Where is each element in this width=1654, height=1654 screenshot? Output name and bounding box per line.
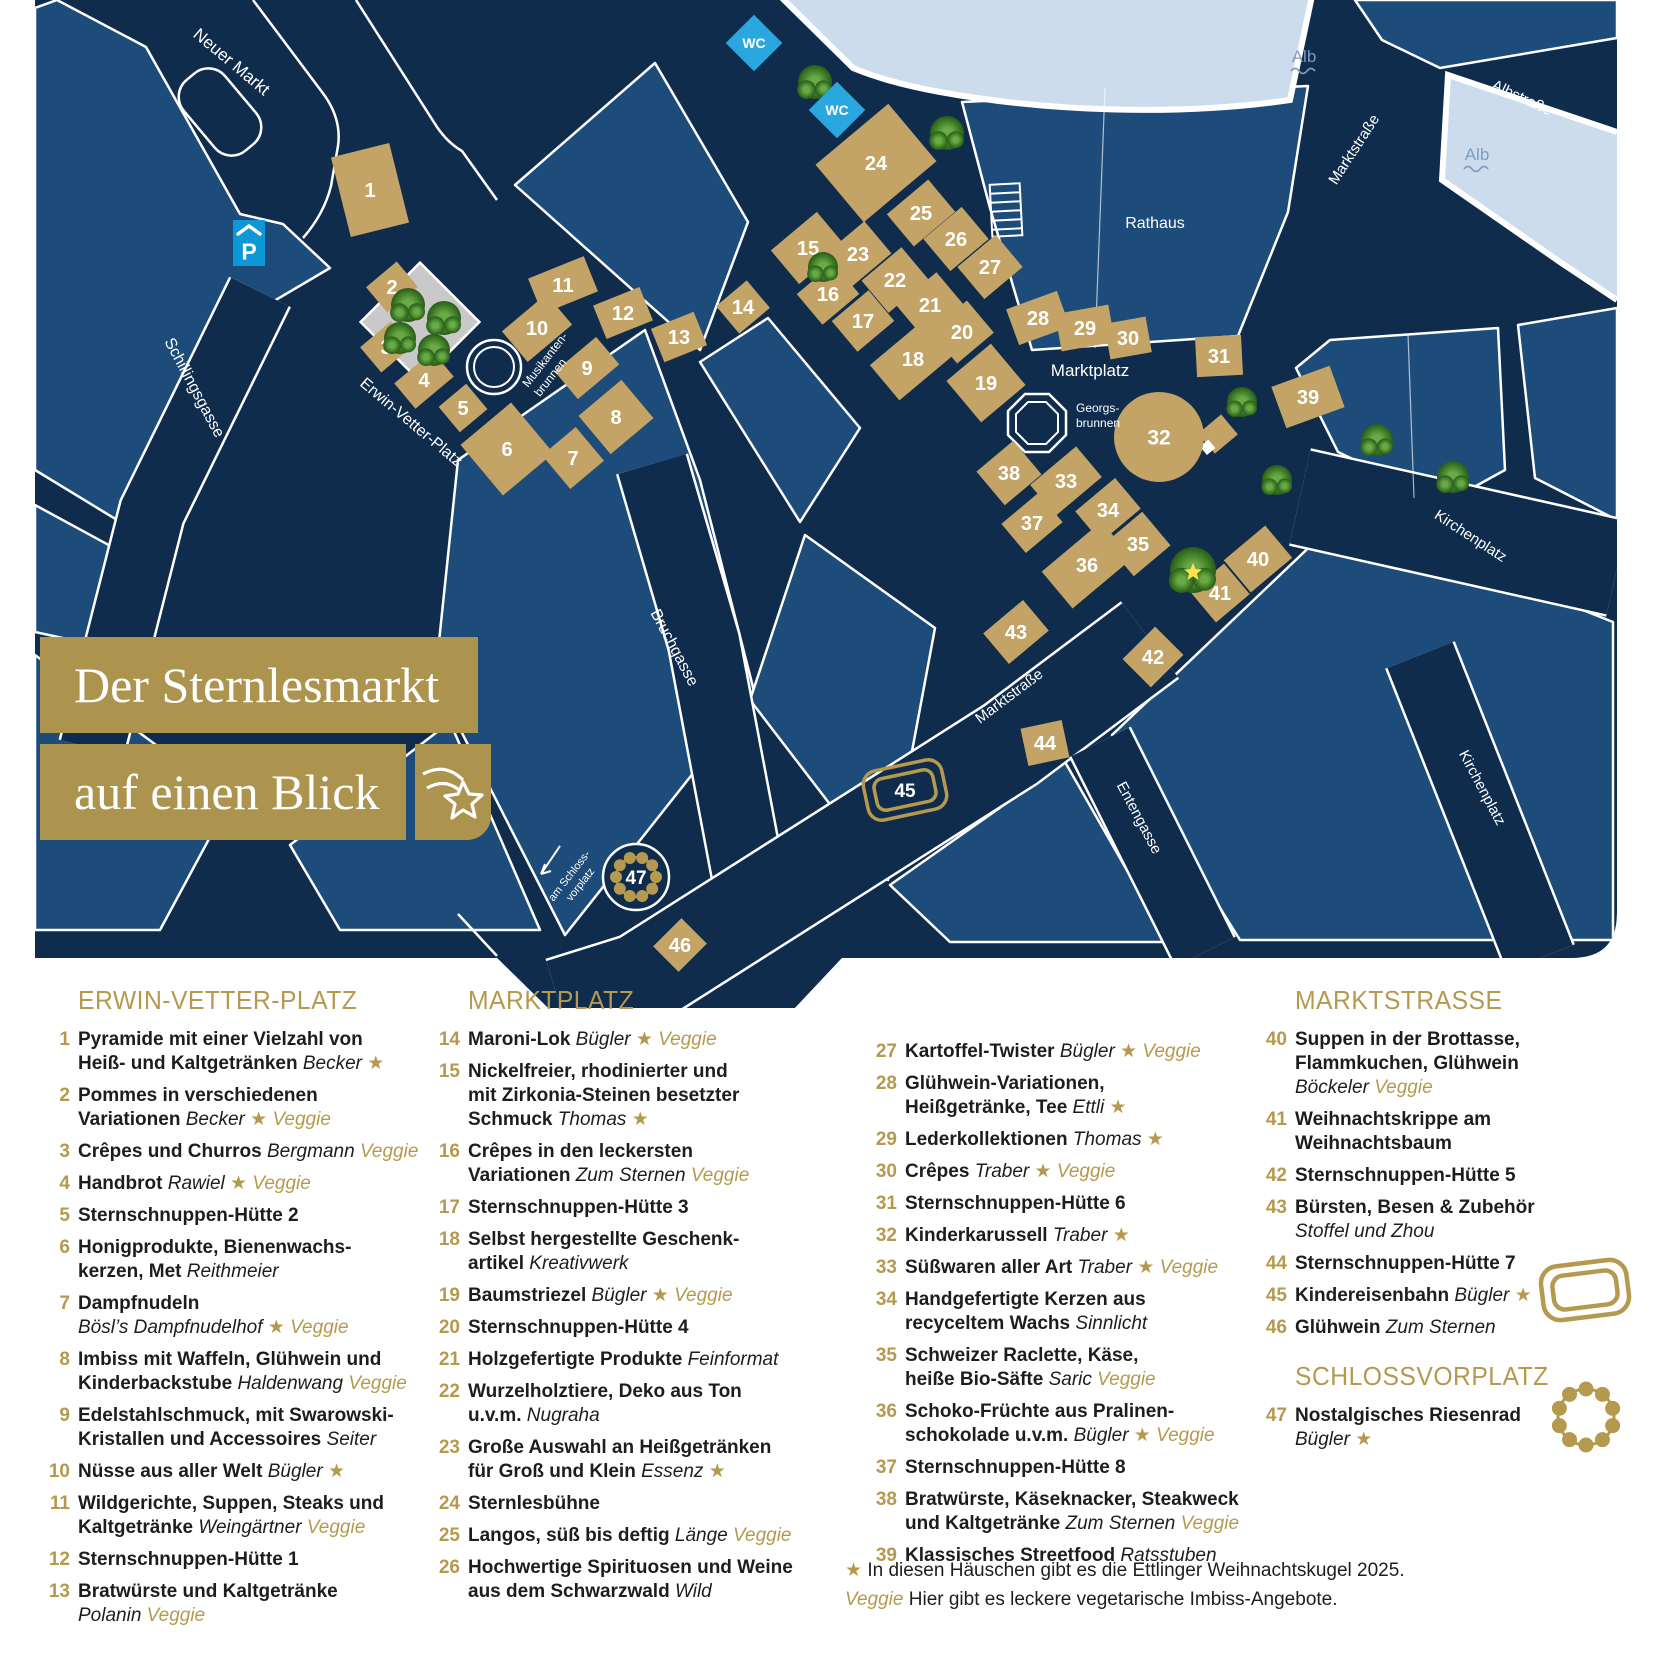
legend-item-number: 47	[1253, 1404, 1287, 1428]
legend-item-9: 9Edelstahlschmuck, mit Swarowski-Kristal…	[78, 1404, 438, 1452]
svg-text:45: 45	[894, 781, 916, 802]
svg-text:23: 23	[847, 244, 869, 266]
legend-item-40: 40Suppen in der Brottasse,Flammkuchen, G…	[1295, 1028, 1654, 1100]
svg-text:31: 31	[1208, 346, 1230, 368]
legend-item-12: 12Sternschnuppen-Hütte 1	[78, 1548, 438, 1572]
legend-text: u.v.m.	[468, 1405, 527, 1426]
legend-item-34: 34Handgefertigte Kerzen ausrecyceltem Wa…	[905, 1288, 1265, 1336]
legend-text: Langos, süß bis deftig	[468, 1525, 675, 1546]
legend-text: Stoffel und Zhou	[1295, 1221, 1434, 1242]
legend-item-8: 8Imbiss mit Waffeln, Glühwein undKinderb…	[78, 1348, 438, 1396]
legend-text: Traber	[1053, 1225, 1113, 1246]
legend-text: Heißgetränke, Tee	[905, 1097, 1073, 1118]
legend-text: Glühwein	[1295, 1317, 1386, 1338]
legend-text: Veggie	[845, 1589, 903, 1610]
street-label: Marktplatz	[1051, 361, 1129, 380]
star-marker: ★	[845, 1560, 862, 1581]
legend-column-2: 14Maroni-Lok Bügler ★ Veggie15Nickelfrei…	[468, 1028, 828, 1612]
legend-item-14: 14Maroni-Lok Bügler ★ Veggie	[468, 1028, 828, 1052]
star-marker: ★	[652, 1285, 669, 1306]
legend-text: Kinderkarussell	[905, 1225, 1053, 1246]
svg-text:30: 30	[1117, 328, 1139, 350]
legend-item-36: 36Schoko-Früchte aus Pralinen-schokolade…	[905, 1400, 1265, 1448]
legend-text: Veggie	[147, 1605, 205, 1626]
legend-text: Handgefertigte Kerzen aus	[905, 1289, 1146, 1310]
legend-item-number: 7	[36, 1292, 70, 1316]
legend-text: Veggie	[360, 1141, 418, 1162]
legend-text: Veggie	[1097, 1369, 1155, 1390]
star-marker: ★	[1120, 1041, 1137, 1062]
svg-text:WC: WC	[742, 35, 765, 51]
legend-text: Große Auswahl an Heißgetränken	[468, 1437, 771, 1458]
stall-30: 30	[1104, 317, 1152, 360]
legend-text: und Kaltgetränke	[905, 1513, 1065, 1534]
legend-item-number: 5	[36, 1204, 70, 1228]
legend-text: Veggie	[1052, 1161, 1116, 1182]
legend-text: Veggie	[307, 1517, 365, 1538]
legend-item-number: 26	[426, 1556, 460, 1580]
legend-item-number: 40	[1253, 1028, 1287, 1052]
market-map: 1234567891011121314151617181920212223242…	[0, 0, 1654, 1010]
svg-text:18: 18	[902, 349, 924, 371]
legend-text: Sternschnuppen-Hütte 1	[78, 1549, 299, 1570]
legend-text: Veggie	[691, 1165, 749, 1186]
legend-text: Feinformat	[688, 1349, 779, 1370]
street-label: Rathaus	[1125, 215, 1185, 232]
legend-text: Kinderbackstube	[78, 1373, 237, 1394]
legend-text: Bratwürste und Kaltgetränke	[78, 1581, 338, 1602]
legend-text: Baumstriezel	[468, 1285, 592, 1306]
legend-text: Crêpes	[905, 1161, 975, 1182]
legend-text: Saric	[1049, 1369, 1098, 1390]
svg-text:8: 8	[610, 407, 621, 429]
svg-text:6: 6	[501, 439, 512, 461]
legend-column-1: 1Pyramide mit einer Vielzahl vonHeiß- un…	[78, 1028, 438, 1636]
legend-item-13: 13Bratwürste und KaltgetränkePolanin Veg…	[78, 1580, 438, 1628]
legend-item-number: 27	[863, 1040, 897, 1064]
legend-text: Bügler	[1060, 1041, 1120, 1062]
legend-text: Pommes in verschiedenen	[78, 1085, 318, 1106]
svg-text:33: 33	[1055, 471, 1077, 493]
legend-text: Weingärtner	[198, 1517, 306, 1538]
legend-item-32: 32Kinderkarussell Traber ★	[905, 1224, 1265, 1248]
legend-item-37: 37Sternschnuppen-Hütte 8	[905, 1456, 1265, 1480]
legend-item-number: 4	[36, 1172, 70, 1196]
legend-text: Polanin	[78, 1605, 147, 1626]
legend-text: Veggie	[1154, 1257, 1218, 1278]
legend-text: Länge	[675, 1525, 733, 1546]
legend-text: Veggie	[247, 1173, 311, 1194]
legend-text: Crêpes in den leckersten	[468, 1141, 693, 1162]
legend-text: Rawiel	[168, 1173, 230, 1194]
legend-text: Bügler	[1295, 1429, 1355, 1450]
legend-item-33: 33Süßwaren aller Art Traber ★ Veggie	[905, 1256, 1265, 1280]
legend-item-number: 3	[36, 1140, 70, 1164]
star-marker: ★	[1355, 1429, 1372, 1450]
svg-text:39: 39	[1297, 387, 1319, 409]
legend-text: Kaltgetränke	[78, 1517, 198, 1538]
svg-text:9: 9	[581, 358, 592, 380]
legend-text: Hier gibt es leckere vegetarische Imbiss…	[903, 1589, 1337, 1610]
svg-text:brunnen: brunnen	[1076, 416, 1120, 430]
legend-item-17: 17Sternschnuppen-Hütte 3	[468, 1196, 828, 1220]
legend-text: Wild	[675, 1581, 712, 1602]
legend-text: Essenz	[641, 1461, 709, 1482]
legend-text: Bergmann	[267, 1141, 360, 1162]
svg-text:40: 40	[1247, 549, 1269, 571]
legend-text: Thomas	[1073, 1129, 1147, 1150]
legend-text: Holzgefertigte Produkte	[468, 1349, 688, 1370]
svg-text:Alb: Alb	[1465, 145, 1490, 164]
legend-text: Sinnlicht	[1075, 1313, 1147, 1334]
svg-text:25: 25	[910, 203, 932, 225]
star-marker: ★	[1035, 1161, 1052, 1182]
legend-text: Nostalgisches Riesenrad	[1295, 1405, 1521, 1426]
place-label: Georgs-brunnen	[1076, 401, 1120, 430]
legend-item-number: 18	[426, 1228, 460, 1252]
star-marker: ★	[367, 1053, 384, 1074]
shooting-star-icon	[415, 744, 491, 840]
star-marker: ★	[268, 1317, 285, 1338]
svg-text:32: 32	[1147, 427, 1170, 450]
legend-text: Zum Sternen	[1065, 1513, 1180, 1534]
legend-item-number: 35	[863, 1344, 897, 1368]
legend-text: kerzen, Met	[78, 1261, 187, 1282]
legend-item-number: 11	[36, 1492, 70, 1516]
legend-text: artikel	[468, 1253, 529, 1274]
legend-text: Veggie	[348, 1373, 406, 1394]
legend-text: Edelstahlschmuck, mit Swarowski-	[78, 1405, 394, 1426]
legend-item-18: 18Selbst hergestellte Geschenk-artikel K…	[468, 1228, 828, 1276]
legend-item-number: 21	[426, 1348, 460, 1372]
legend-item-number: 23	[426, 1436, 460, 1460]
legend-item-number: 31	[863, 1192, 897, 1216]
legend-item-number: 12	[36, 1548, 70, 1572]
legend-section-header: MARKTSTRASSE	[1295, 985, 1502, 1016]
svg-text:WC: WC	[825, 102, 848, 118]
star-marker: ★	[636, 1029, 653, 1050]
legend-item-23: 23Große Auswahl an Heißgetränkenfür Groß…	[468, 1436, 828, 1484]
legend-text: Sternschnuppen-Hütte 4	[468, 1317, 689, 1338]
legend-item-number: 36	[863, 1400, 897, 1424]
svg-text:1: 1	[364, 180, 375, 202]
legend-text: Reithmeier	[187, 1261, 279, 1282]
svg-text:17: 17	[852, 311, 874, 333]
legend-text: Bügler	[1454, 1285, 1514, 1306]
svg-text:46: 46	[669, 935, 691, 957]
legend-text: Sternschnuppen-Hütte 5	[1295, 1165, 1516, 1186]
legend-item-number: 2	[36, 1084, 70, 1108]
legend-text: Veggie	[653, 1029, 717, 1050]
legend-text: Variationen	[78, 1109, 186, 1130]
legend-section-header: ERWIN-VETTER-PLATZ	[78, 985, 357, 1016]
legend-item-number: 43	[1253, 1196, 1287, 1220]
legend-item-1: 1Pyramide mit einer Vielzahl vonHeiß- un…	[78, 1028, 438, 1076]
legend-item-number: 28	[863, 1072, 897, 1096]
legend-text: Haldenwang	[237, 1373, 348, 1394]
legend-item-4: 4Handbrot Rawiel ★ Veggie	[78, 1172, 438, 1196]
legend-text: Becker	[186, 1109, 250, 1130]
svg-text:4: 4	[418, 370, 430, 392]
legend-text: In diesen Häuschen gibt es die Ettlinger…	[862, 1560, 1405, 1581]
legend-text: Bürsten, Besen & Zubehör	[1295, 1197, 1535, 1218]
svg-text:42: 42	[1142, 647, 1164, 669]
legend-item-31: 31Sternschnuppen-Hütte 6	[905, 1192, 1265, 1216]
svg-text:43: 43	[1005, 622, 1027, 644]
legend-item-6: 6Honigprodukte, Bienenwachs-kerzen, Met …	[78, 1236, 438, 1284]
svg-text:13: 13	[668, 327, 690, 349]
legend-text: Veggie	[1137, 1041, 1201, 1062]
legend-text: Zum Sternen	[576, 1165, 691, 1186]
legend-text: mit Zirkonia-Steinen besetzter	[468, 1085, 739, 1106]
legend-item-number: 41	[1253, 1108, 1287, 1132]
legend-text: Kartoffel-Twister	[905, 1041, 1060, 1062]
legend-text: Lederkollektionen	[905, 1129, 1073, 1150]
legend-item-number: 19	[426, 1284, 460, 1308]
star-marker: ★	[1113, 1225, 1130, 1246]
legend-item-number: 9	[36, 1404, 70, 1428]
legend-item-26: 26Hochwertige Spirituosen und Weineaus d…	[468, 1556, 828, 1604]
legend-text: Nickelfreier, rhodinierter und	[468, 1061, 728, 1082]
legend-item-29: 29Lederkollektionen Thomas ★	[905, 1128, 1265, 1152]
svg-text:24: 24	[865, 153, 888, 175]
legend-text: Nüsse aus aller Welt	[78, 1461, 268, 1482]
legend-text: Suppen in der Brottasse,	[1295, 1029, 1520, 1050]
ferris-wheel-icon	[1544, 1375, 1628, 1459]
svg-text:26: 26	[945, 229, 967, 251]
legend-text: Honigprodukte, Bienenwachs-	[78, 1237, 351, 1258]
legend-text: Schmuck	[468, 1109, 558, 1130]
legend-text: Veggie	[285, 1317, 349, 1338]
legend-item-number: 24	[426, 1492, 460, 1516]
svg-text:P: P	[241, 238, 256, 264]
legend-text: Schoko-Früchte aus Pralinen-	[905, 1401, 1174, 1422]
legend-item-27: 27Kartoffel-Twister Bügler ★ Veggie	[905, 1040, 1265, 1064]
legend-item-2: 2Pommes in verschiedenenVariationen Beck…	[78, 1084, 438, 1132]
legend-text: Pyramide mit einer Vielzahl von	[78, 1029, 363, 1050]
legend-text: Weihnachtskrippe am	[1295, 1109, 1491, 1130]
legend-item-30: 30Crêpes Traber ★ Veggie	[905, 1160, 1265, 1184]
legend-text: Veggie	[1181, 1513, 1239, 1534]
legend-item-number: 22	[426, 1380, 460, 1404]
stall-47-ferris-wheel: 47	[603, 844, 669, 910]
svg-text:5: 5	[457, 398, 468, 420]
train-track-icon	[1530, 1252, 1640, 1328]
legend-text: Ettli	[1073, 1097, 1110, 1118]
legend-item-number: 1	[36, 1028, 70, 1052]
legend-text: schokolade u.v.m.	[905, 1425, 1074, 1446]
legend-text: Traber	[1077, 1257, 1137, 1278]
legend-text: Schweizer Raclette, Käse,	[905, 1345, 1138, 1366]
star-marker: ★	[709, 1461, 726, 1482]
legend-text: Heiß- und Kaltgetränken	[78, 1053, 303, 1074]
legend-item-number: 16	[426, 1140, 460, 1164]
parking-icon: P	[233, 220, 265, 266]
legend-item-number: 15	[426, 1060, 460, 1084]
legend-text: Weihnachtsbaum	[1295, 1133, 1452, 1154]
legend-text: Crêpes und Churros	[78, 1141, 267, 1162]
legend-text: Veggie	[267, 1109, 331, 1130]
svg-text:22: 22	[884, 270, 906, 292]
legend-text: Veggie	[1151, 1425, 1215, 1446]
legend-text: Handbrot	[78, 1173, 168, 1194]
legend-text: Bügler	[576, 1029, 636, 1050]
legend-item-number: 6	[36, 1236, 70, 1260]
legend-text: recyceltem Wachs	[905, 1313, 1075, 1334]
legend-item-16: 16Crêpes in den leckerstenVariationen Zu…	[468, 1140, 828, 1188]
legend-text: Bügler	[268, 1461, 328, 1482]
svg-text:28: 28	[1027, 308, 1049, 330]
svg-text:27: 27	[979, 257, 1001, 279]
legend-text: Bügler	[1074, 1425, 1134, 1446]
svg-text:14: 14	[732, 297, 755, 319]
legend-item-28: 28Glühwein-Variationen,Heißgetränke, Tee…	[905, 1072, 1265, 1120]
legend-text: Maroni-Lok	[468, 1029, 576, 1050]
legend-text: Veggie	[733, 1525, 791, 1546]
svg-text:Alb: Alb	[1292, 47, 1317, 66]
legend-text: Sternschnuppen-Hütte 2	[78, 1205, 299, 1226]
svg-text:38: 38	[998, 463, 1020, 485]
legend-text: Variationen	[468, 1165, 576, 1186]
legend-text: Hochwertige Spirituosen und Weine	[468, 1557, 793, 1578]
svg-text:47: 47	[625, 868, 646, 889]
legend-text: Sternschnuppen-Hütte 3	[468, 1197, 689, 1218]
svg-text:16: 16	[817, 284, 839, 306]
svg-text:10: 10	[526, 318, 548, 340]
legend-text: Sternschnuppen-Hütte 6	[905, 1193, 1126, 1214]
legend-text: aus dem Schwarzwald	[468, 1581, 675, 1602]
legend-text: Sternlesbühne	[468, 1493, 600, 1514]
legend-text: Zum Sternen	[1386, 1317, 1496, 1338]
legend-text: Seiter	[327, 1429, 377, 1450]
svg-text:21: 21	[919, 295, 941, 317]
legend-item-number: 17	[426, 1196, 460, 1220]
title-line1: Der Sternlesmarkt	[40, 637, 478, 733]
title-line2: auf einen Blick	[40, 744, 406, 840]
legend-text: heiße Bio-Säfte	[905, 1369, 1049, 1390]
legend-section-header: SCHLOSSVORPLATZ	[1295, 1361, 1549, 1392]
legend-text: Veggie	[669, 1285, 733, 1306]
legend-item-20: 20Sternschnuppen-Hütte 4	[468, 1316, 828, 1340]
legend-text: Bratwürste, Käseknacker, Steakweck	[905, 1489, 1239, 1510]
legend-item-number: 46	[1253, 1316, 1287, 1340]
legend-text: Flammkuchen, Glühwein	[1295, 1053, 1519, 1074]
legend-item-21: 21Holzgefertigte Produkte Feinformat	[468, 1348, 828, 1372]
legend-item-38: 38Bratwürste, Käseknacker, Steakweckund …	[905, 1488, 1265, 1536]
legend-text: Kristallen und Accessoires	[78, 1429, 327, 1450]
legend-item-10: 10Nüsse aus aller Welt Bügler ★	[78, 1460, 438, 1484]
legend-text: Wildgerichte, Suppen, Steaks und	[78, 1493, 384, 1514]
svg-text:34: 34	[1097, 500, 1120, 522]
star-marker: ★	[250, 1109, 267, 1130]
legend-item-41: 41Weihnachtskrippe amWeihnachtsbaum	[1295, 1108, 1654, 1156]
legend-item-number: 20	[426, 1316, 460, 1340]
legend-item-7: 7DampfnudelnBösl’s Dampfnudelhof ★ Veggi…	[78, 1292, 438, 1340]
svg-text:37: 37	[1021, 513, 1043, 535]
legend-item-number: 38	[863, 1488, 897, 1512]
legend-text: Imbiss mit Waffeln, Glühwein und	[78, 1349, 381, 1370]
legend-item-11: 11Wildgerichte, Suppen, Steaks undKaltge…	[78, 1492, 438, 1540]
legend-column-3: 27Kartoffel-Twister Bügler ★ Veggie28Glü…	[905, 1040, 1265, 1576]
legend-item-3: 3Crêpes und Churros Bergmann Veggie	[78, 1140, 438, 1164]
legend-text: Bösl’s Dampfnudelhof	[78, 1317, 268, 1338]
legend-item-number: 14	[426, 1028, 460, 1052]
legend-item-number: 34	[863, 1288, 897, 1312]
svg-text:44: 44	[1034, 733, 1057, 755]
legend-text: Sternschnuppen-Hütte 8	[905, 1457, 1126, 1478]
legend-section-header: MARKTPLATZ	[468, 985, 634, 1016]
svg-text:20: 20	[951, 322, 973, 344]
legend-text: Selbst hergestellte Geschenk-	[468, 1229, 739, 1250]
legend-item-number: 42	[1253, 1164, 1287, 1188]
star-marker: ★	[632, 1109, 649, 1130]
legend-footnote: ★ In diesen Häuschen gibt es die Ettling…	[845, 1556, 1405, 1614]
svg-text:11: 11	[552, 275, 573, 297]
legend-item-number: 45	[1253, 1284, 1287, 1308]
legend-item-22: 22Wurzelholztiere, Deko aus Tonu.v.m. Nu…	[468, 1380, 828, 1428]
legend-item-42: 42Sternschnuppen-Hütte 5	[1295, 1164, 1654, 1188]
legend-item-43: 43Bürsten, Besen & ZubehörStoffel und Zh…	[1295, 1196, 1654, 1244]
legend-text: Kindereisenbahn	[1295, 1285, 1454, 1306]
legend-text: für Groß und Klein	[468, 1461, 641, 1482]
legend-item-number: 44	[1253, 1252, 1287, 1276]
legend-text: Dampfnudeln	[78, 1293, 199, 1314]
legend-item-number: 37	[863, 1456, 897, 1480]
legend-text: Becker	[303, 1053, 367, 1074]
legend-text: Sternschnuppen-Hütte 7	[1295, 1253, 1516, 1274]
legend-text: Wurzelholztiere, Deko aus Ton	[468, 1381, 742, 1402]
legend-item-25: 25Langos, süß bis deftig Länge Veggie	[468, 1524, 828, 1548]
legend-text: Traber	[975, 1161, 1035, 1182]
legend-item-35: 35Schweizer Raclette, Käse,heiße Bio-Säf…	[905, 1344, 1265, 1392]
legend-text: Veggie	[1374, 1077, 1432, 1098]
legend-item-15: 15Nickelfreier, rhodinierter undmit Zirk…	[468, 1060, 828, 1132]
svg-text:19: 19	[975, 373, 997, 395]
legend-text: Thomas	[558, 1109, 632, 1130]
legend-item-number: 30	[863, 1160, 897, 1184]
legend-item-19: 19Baumstriezel Bügler ★ Veggie	[468, 1284, 828, 1308]
legend-item-24: 24Sternlesbühne	[468, 1492, 828, 1516]
legend-item-number: 10	[36, 1460, 70, 1484]
svg-text:12: 12	[612, 303, 634, 325]
legend-item-number: 29	[863, 1128, 897, 1152]
shooting-star-tile	[415, 744, 491, 840]
svg-text:7: 7	[567, 448, 578, 470]
sternlesmarkt-poster: 1234567891011121314151617181920212223242…	[0, 0, 1654, 1654]
legend-item-number: 32	[863, 1224, 897, 1248]
legend-item-number: 8	[36, 1348, 70, 1372]
legend-text: Süßwaren aller Art	[905, 1257, 1077, 1278]
svg-text:36: 36	[1076, 555, 1098, 577]
legend-item-number: 33	[863, 1256, 897, 1280]
svg-text:Georgs-: Georgs-	[1076, 401, 1119, 415]
star-marker: ★	[1147, 1129, 1164, 1150]
svg-text:29: 29	[1074, 318, 1096, 340]
legend-text: Nugraha	[527, 1405, 600, 1426]
star-marker: ★	[1137, 1257, 1154, 1278]
star-marker: ★	[230, 1173, 247, 1194]
stall-31: 31	[1195, 335, 1243, 377]
legend-item-number: 25	[426, 1524, 460, 1548]
legend-text: Bügler	[592, 1285, 652, 1306]
star-marker: ★	[328, 1461, 345, 1482]
svg-text:35: 35	[1127, 534, 1149, 556]
star-marker: ★	[1134, 1425, 1151, 1446]
legend-text: Böckeler	[1295, 1077, 1374, 1098]
legend-text: Glühwein-Variationen,	[905, 1073, 1105, 1094]
star-marker: ★	[1110, 1097, 1127, 1118]
legend-item-5: 5Sternschnuppen-Hütte 2	[78, 1204, 438, 1228]
